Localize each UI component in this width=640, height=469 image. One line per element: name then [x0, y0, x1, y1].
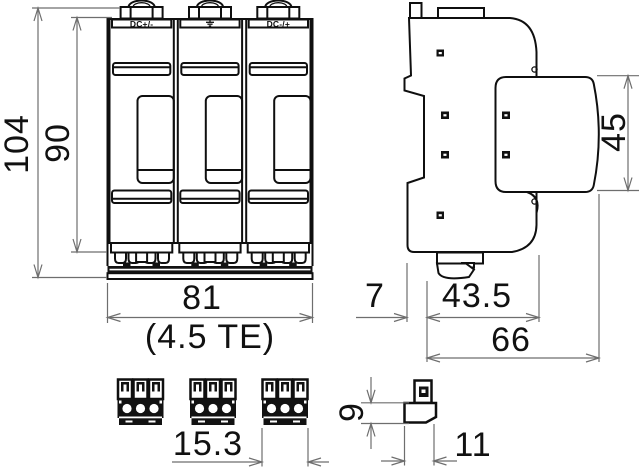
- dim-side-module-height: 45: [597, 112, 631, 152]
- terminal-block: [262, 380, 308, 426]
- drawing-linework: [0, 0, 640, 469]
- dim-rail-depth: 7: [365, 279, 385, 313]
- terminal-block: [190, 380, 236, 426]
- module-2: [178, 1, 242, 268]
- dim-module-height: 90: [41, 123, 75, 163]
- dim-terminal-height: 9: [335, 402, 369, 422]
- dim-width-te: (4.5 TE): [145, 320, 275, 354]
- dim-overall-depth: 66: [491, 323, 531, 357]
- dim-terminal-width: 15.3: [173, 427, 243, 461]
- module-1: [110, 1, 174, 268]
- technical-drawing: 104 90 81 (4.5 TE) 7 43.5 66 45 15.3 9 1…: [0, 0, 640, 469]
- module-3-label: DC-/+: [267, 19, 290, 28]
- terminal-block: [118, 380, 164, 426]
- dim-overall-height: 104: [0, 114, 34, 174]
- terminal-side-view: [361, 377, 457, 466]
- side-module: [496, 77, 599, 192]
- dim-base-depth: 43.5: [442, 279, 512, 313]
- dim-width: 81: [182, 281, 222, 315]
- module-3: [246, 1, 310, 268]
- dim-terminal-depth: 11: [454, 428, 491, 462]
- module-1-label: DC+/-: [130, 19, 153, 28]
